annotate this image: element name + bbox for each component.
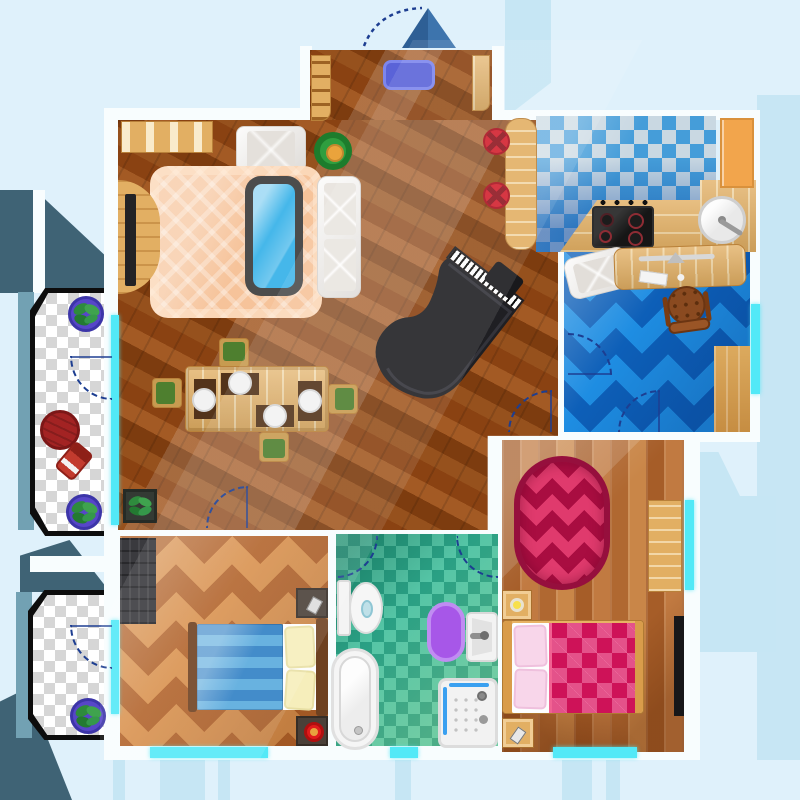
red-lamp (304, 722, 324, 742)
light-shaft-bottom-3 (218, 760, 230, 800)
sofa (317, 176, 361, 298)
sofa-cushion-top (324, 183, 356, 235)
bar-stool-2 (483, 182, 510, 209)
pillow-1 (513, 624, 547, 667)
bar-counter (505, 118, 537, 250)
chair-seat (263, 439, 285, 458)
nightstand2-lamp (296, 716, 328, 746)
doormat (383, 60, 435, 90)
nightstand-lamp (502, 590, 532, 620)
wall-entrance-right (492, 46, 504, 122)
purple-rug (427, 602, 465, 662)
door-leaf-balcony-upper (70, 356, 112, 358)
dining-chair-right (328, 384, 358, 414)
plant-pot-center (326, 144, 344, 162)
stove-knobs (596, 200, 652, 205)
planter-leaves (126, 492, 154, 520)
plate-right (298, 389, 322, 413)
wall-bedroom-right (682, 437, 700, 758)
chair-seat (335, 388, 354, 410)
tv (125, 194, 136, 286)
sink-faucet-knob (480, 631, 489, 640)
nightstand2-phone (296, 588, 328, 618)
window-bottom-1 (150, 747, 268, 758)
desk-keyboard (639, 270, 668, 286)
bed2-pillow-2 (284, 669, 317, 711)
bed-footboard (635, 621, 643, 713)
light-shaft-bottom-5 (562, 760, 592, 800)
building-shadow-upper-left (0, 190, 110, 293)
diamond-blanket (549, 623, 640, 713)
armchair-cushion (247, 131, 295, 169)
balcony-plant-1 (68, 296, 104, 332)
square-planter (123, 489, 157, 523)
bedroom-dresser (648, 500, 682, 592)
nightstand-phone (502, 718, 534, 748)
entrance-open-door-icon (356, 2, 462, 50)
chair-seat (223, 342, 245, 361)
office-wood-patch (714, 346, 750, 432)
plant-leaves (73, 701, 103, 731)
potted-plant-ring (314, 132, 352, 170)
bed-headboard (503, 621, 512, 713)
bedroom-wardrobe-strip (674, 616, 684, 716)
bed2-blanket-sheen (197, 624, 283, 710)
window-bedroom2-left (111, 620, 119, 714)
door-leaf-bedroom2 (246, 486, 248, 528)
balcony-divider-wall (30, 556, 110, 572)
light-shaft-top (505, 0, 551, 118)
phone2 (306, 596, 323, 614)
office-chair (661, 283, 713, 335)
door-leaf-right (428, 8, 456, 48)
apartment-floor-plan (0, 0, 800, 800)
plate-top (228, 371, 252, 395)
wall-shelf (121, 121, 213, 153)
tall-cabinet (720, 118, 754, 188)
window-living-left (111, 315, 119, 525)
light-shaft-right-tall (757, 95, 800, 760)
burner-3 (599, 230, 612, 243)
sofa-cushion-bottom (324, 239, 356, 291)
lamp (510, 598, 524, 612)
window-bottom-3 (553, 747, 637, 758)
shower-glass-left (443, 687, 447, 735)
master-bed (502, 620, 644, 714)
light-shaft-bottom-4 (395, 760, 411, 800)
desk-mouse (677, 274, 684, 281)
light-shaft-bottom-6 (606, 760, 620, 800)
light-shaft-bottom-1 (113, 760, 125, 800)
coffee-table-glass (253, 184, 295, 288)
plate-bottom (263, 404, 287, 428)
burner-4 (628, 231, 643, 246)
shower-head (477, 691, 487, 701)
dining-chair-top (219, 338, 249, 368)
dark-wardrobe (120, 538, 156, 624)
balcony-plant-3 (70, 698, 106, 734)
red-lamp-center (310, 728, 318, 736)
dining-chair-bottom (259, 432, 289, 462)
crimson-oval-rug (514, 456, 610, 590)
door-leaf-living-corridor (550, 390, 552, 432)
bathtub-drain (354, 726, 363, 735)
bathroom-sink (466, 612, 498, 662)
door-leaf-balcony-lower (70, 625, 112, 627)
chair-seat (156, 382, 175, 404)
window-office-right (751, 304, 760, 394)
plant-leaves (69, 497, 99, 527)
office-desk (613, 244, 746, 291)
balcony-plant-2 (66, 494, 102, 530)
bed2-headboard (316, 618, 328, 716)
plate-left (192, 388, 216, 412)
shower-cabin (438, 678, 498, 748)
window-bedroom-right (685, 500, 694, 590)
toilet-water (361, 600, 373, 618)
shower-glass-top (449, 683, 489, 687)
bed2-footboard (188, 622, 197, 712)
bathtub (331, 648, 379, 750)
shoe-shelf (472, 55, 490, 111)
dining-table (185, 366, 329, 432)
plant-leaves (71, 299, 101, 329)
window-bottom-2 (390, 747, 418, 758)
toilet (337, 576, 385, 640)
toilet-bowl (349, 582, 383, 634)
bed2-pillow-1 (284, 625, 316, 669)
phone (510, 726, 527, 744)
balcony-upper-top-wall (33, 190, 45, 293)
burner-2 (628, 213, 644, 229)
stove (592, 206, 654, 248)
coat-rack-shelf (311, 55, 331, 121)
burner-1 (600, 213, 614, 227)
door-leaf-office-left (568, 373, 612, 375)
coffee-table (245, 176, 303, 296)
shower-knob (479, 715, 488, 724)
dining-chair-left (152, 378, 182, 408)
door-leaf-left (402, 8, 428, 48)
pillow-2 (513, 668, 547, 709)
shower-dots (451, 695, 481, 735)
second-bed (188, 618, 328, 716)
light-shaft-bottom-2 (160, 760, 205, 800)
door-leaf-office-bottom (658, 390, 660, 432)
bar-stool-1 (483, 128, 510, 155)
